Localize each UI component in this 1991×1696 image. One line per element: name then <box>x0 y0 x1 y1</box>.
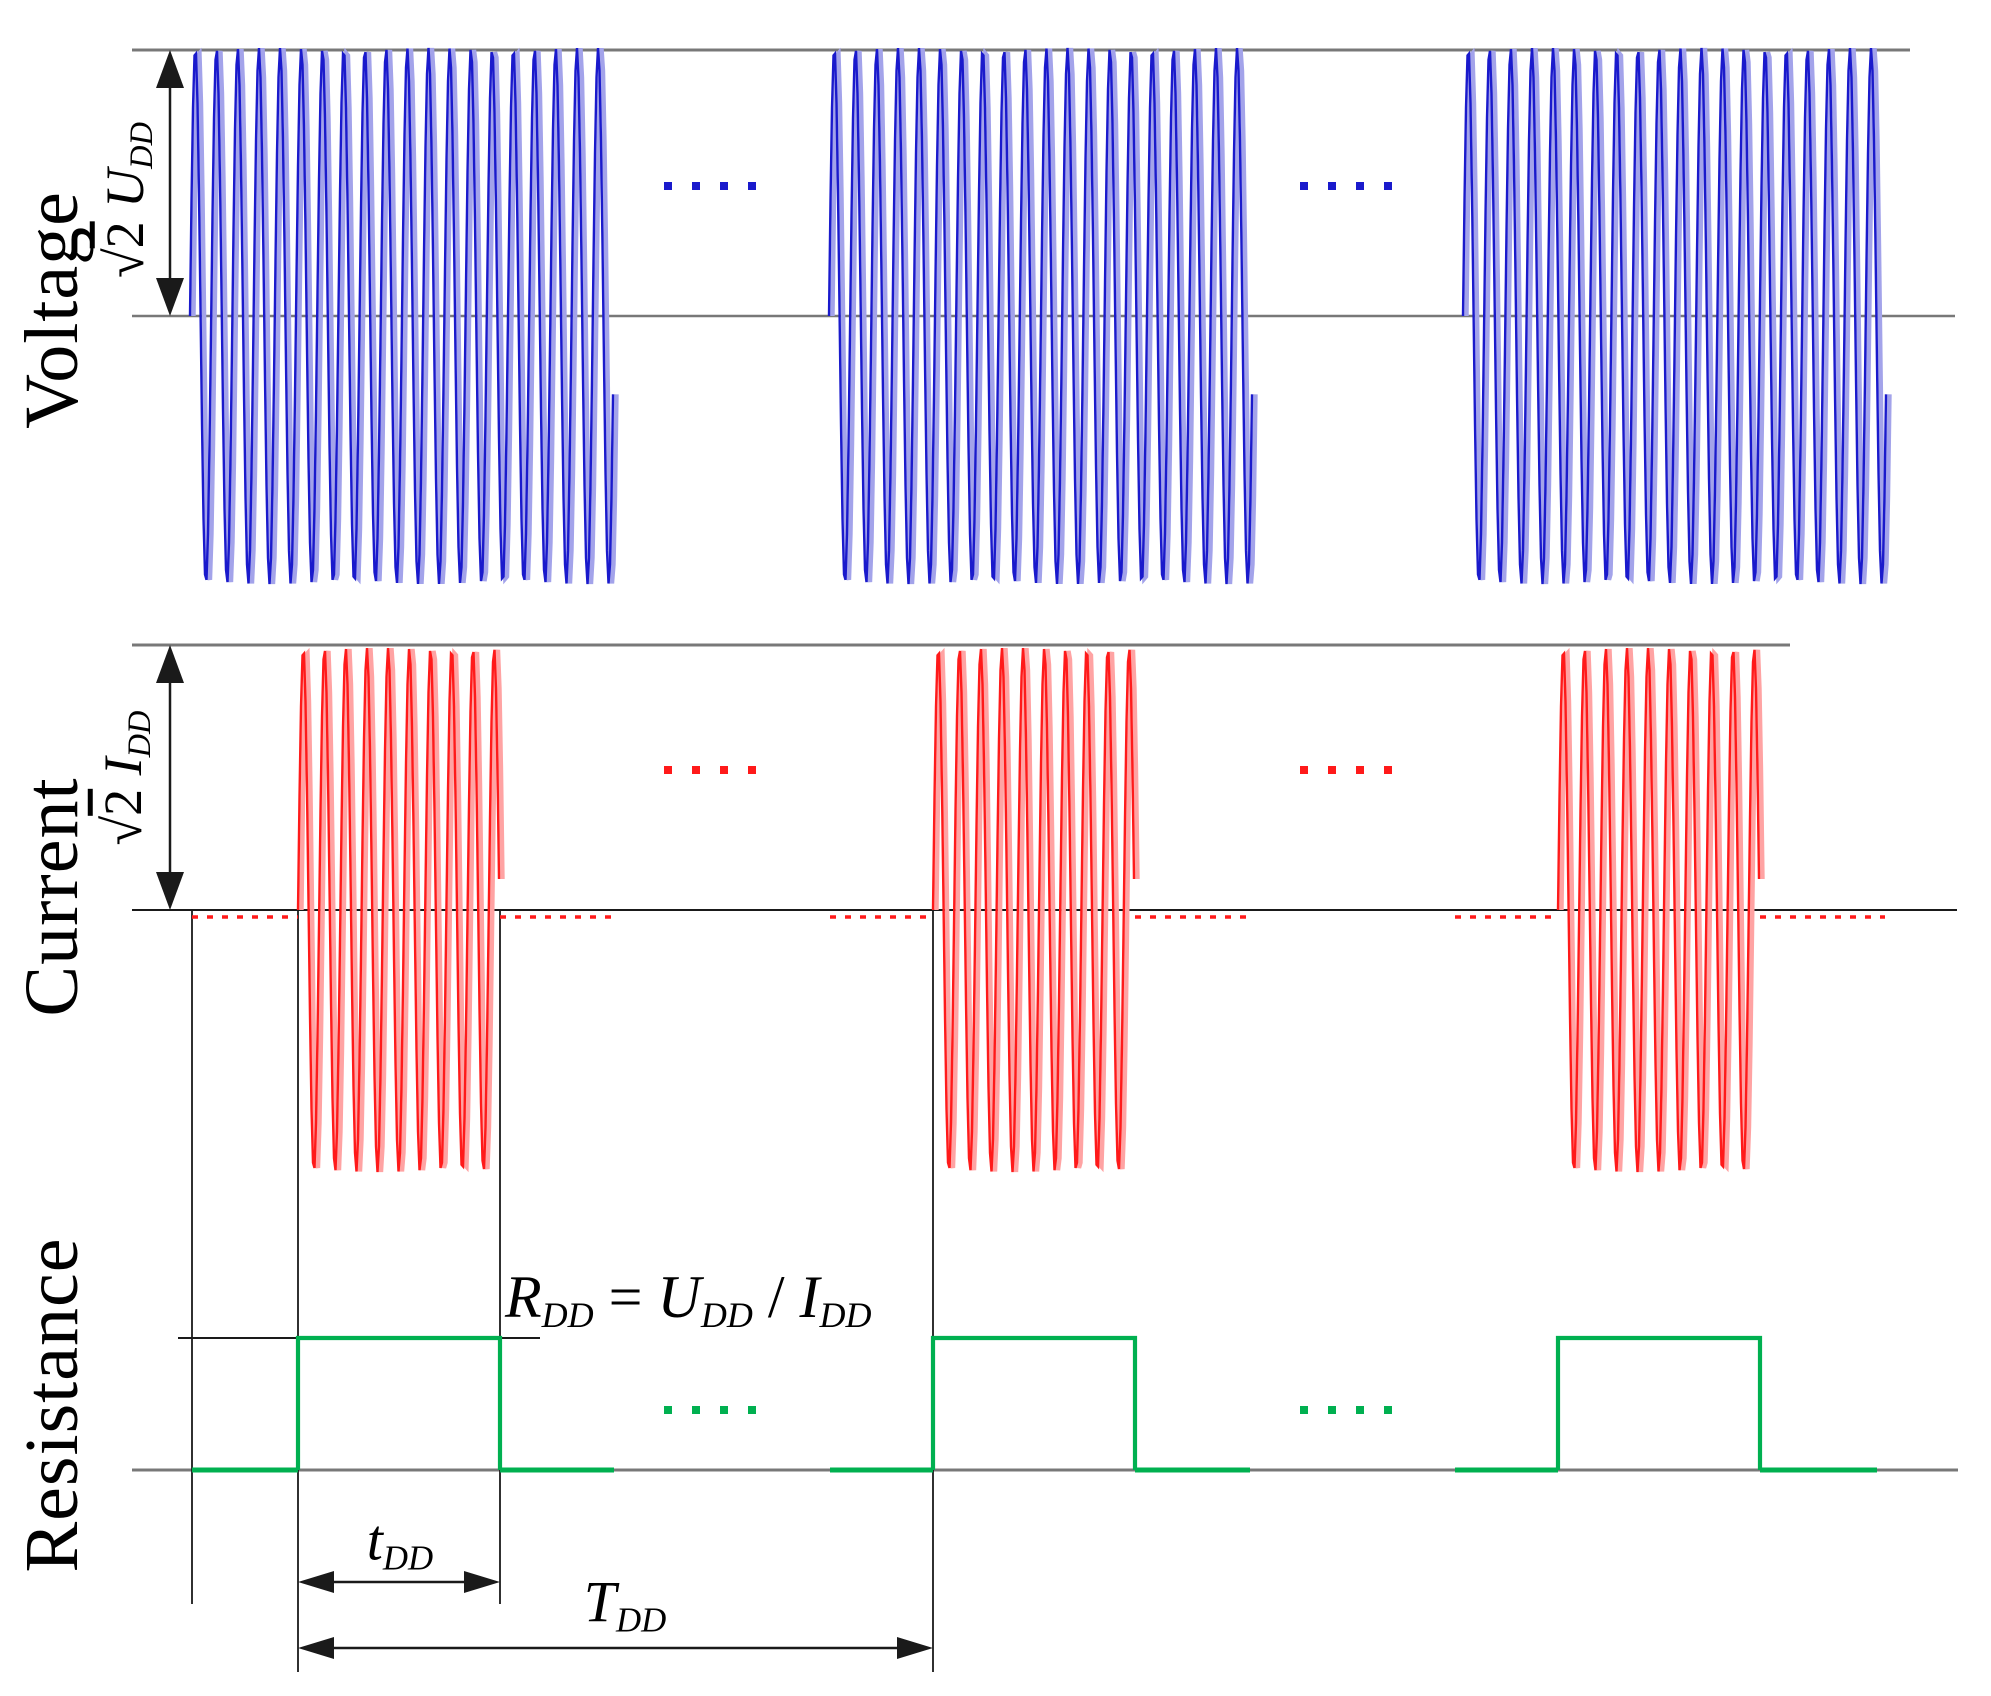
voltage-amplitude-arrow <box>156 50 184 316</box>
resistance-formula-label: RDD = UDD / IDD <box>505 1267 872 1333</box>
current-amplitude-arrow <box>156 645 184 910</box>
resistance-pulse-waveform <box>298 1338 1760 1470</box>
current-amplitude-label: √2 IDD <box>96 711 156 846</box>
waveform-plot-canvas <box>0 0 1991 1696</box>
Tdd-dimension-arrow <box>298 1637 933 1659</box>
current-axis-label: Current <box>14 777 90 1016</box>
Tdd-period-label: TDD <box>584 1574 667 1639</box>
tdd-duration-label: tDD <box>367 1512 433 1577</box>
voltage-axis-label: Voltage <box>14 191 90 429</box>
waveform-figure: Voltage Current Resistance √2 UDD √2 IDD… <box>0 0 1991 1696</box>
voltage-amplitude-label: √2 UDD <box>98 122 158 278</box>
resistance-axis-label: Resistance <box>14 1237 90 1572</box>
resistance-ellipsis-dots <box>664 1406 1392 1414</box>
